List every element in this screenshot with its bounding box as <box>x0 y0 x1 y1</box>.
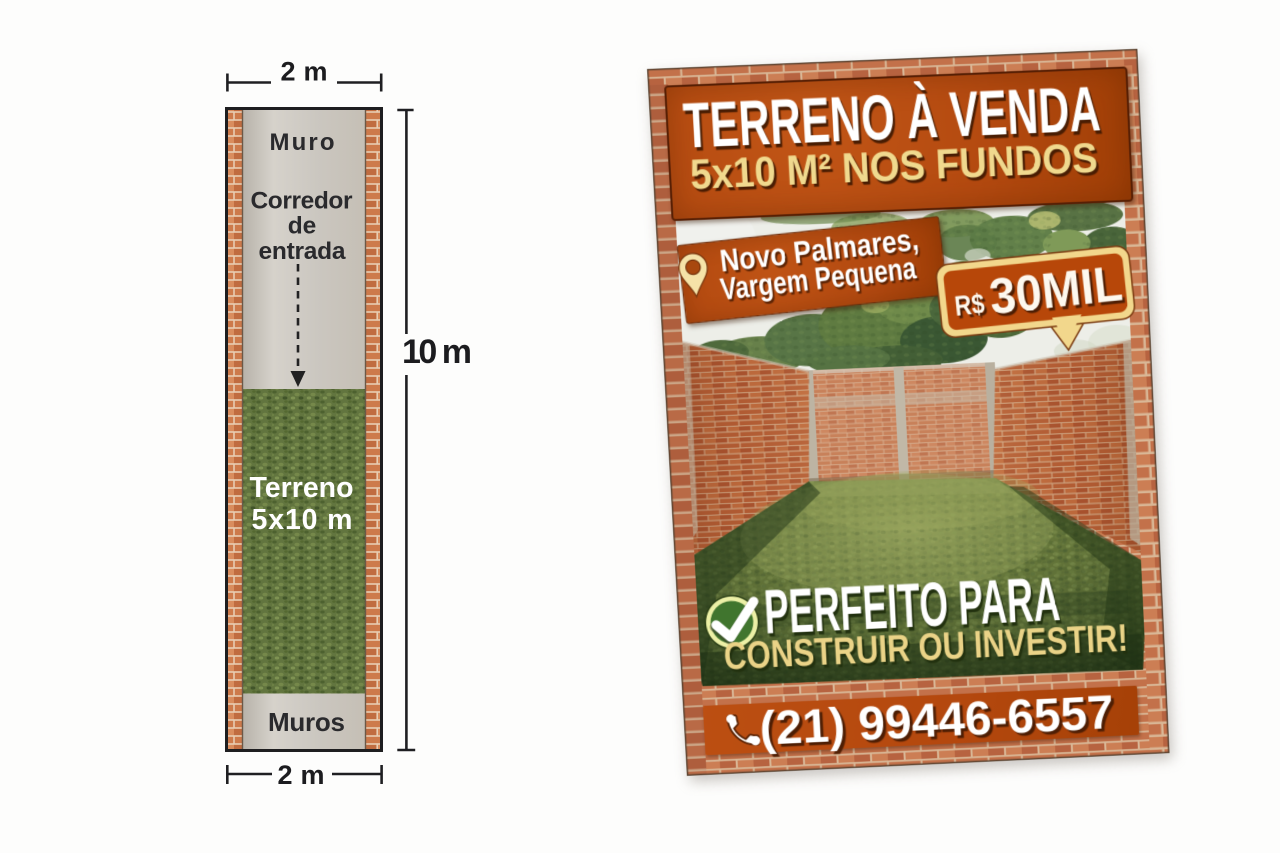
svg-text:10 m: 10 m <box>402 333 472 371</box>
svg-text:Muros: Muros <box>268 707 345 737</box>
svg-text:entrada: entrada <box>259 238 346 265</box>
svg-text:de: de <box>288 213 317 240</box>
svg-text:Corredor: Corredor <box>251 188 353 215</box>
svg-text:2 m: 2 m <box>281 57 328 87</box>
svg-text:5x10 m: 5x10 m <box>252 504 353 536</box>
svg-text:Muro: Muro <box>270 129 335 156</box>
svg-text:(21) 99446-6557: (21) 99446-6557 <box>758 686 1115 755</box>
svg-text:2 m: 2 m <box>278 760 325 790</box>
svg-text:Terreno: Terreno <box>250 472 354 504</box>
